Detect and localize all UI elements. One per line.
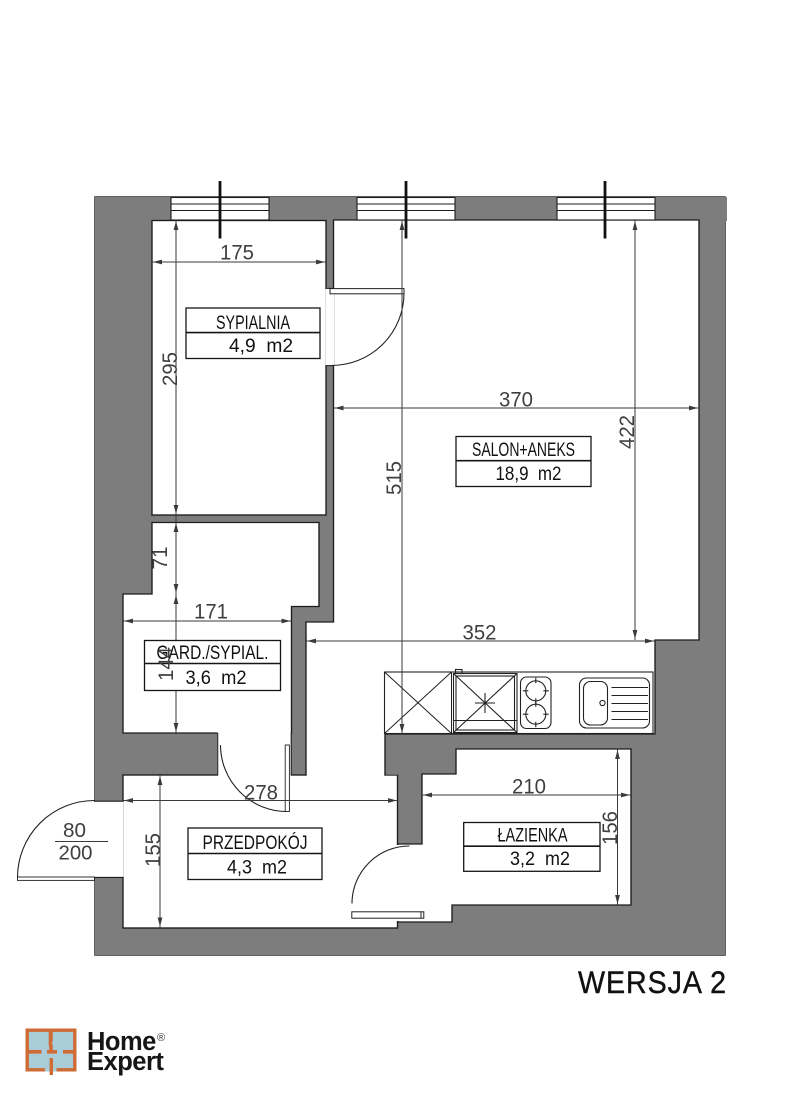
svg-text:155: 155 xyxy=(142,833,165,867)
svg-text:422: 422 xyxy=(616,415,639,449)
svg-text:WERSJA 2: WERSJA 2 xyxy=(578,964,727,1000)
svg-text:370: 370 xyxy=(499,389,533,412)
svg-text:PRZEDPOKÓJ: PRZEDPOKÓJ xyxy=(203,832,308,854)
svg-text:ŁAZIENKA: ŁAZIENKA xyxy=(498,826,568,847)
svg-text:515: 515 xyxy=(383,461,406,495)
svg-text:4,3 m2: 4,3 m2 xyxy=(227,857,287,879)
svg-text:295: 295 xyxy=(159,352,182,386)
svg-text:Expert: Expert xyxy=(87,1048,164,1076)
svg-text:SALON+ANEKS: SALON+ANEKS xyxy=(472,440,575,461)
svg-text:210: 210 xyxy=(512,776,546,799)
svg-text:SYPIALNIA: SYPIALNIA xyxy=(216,313,290,334)
svg-text:71: 71 xyxy=(149,547,172,570)
svg-text:3,2 m2: 3,2 m2 xyxy=(510,848,570,870)
svg-text:®: ® xyxy=(157,1032,165,1044)
svg-text:175: 175 xyxy=(220,242,254,265)
svg-text:171: 171 xyxy=(194,601,228,624)
svg-text:4,9 m2: 4,9 m2 xyxy=(229,335,293,357)
svg-text:156: 156 xyxy=(599,811,622,845)
svg-text:200: 200 xyxy=(59,843,93,865)
svg-text:18,9 m2: 18,9 m2 xyxy=(496,463,562,485)
svg-text:3,6 m2: 3,6 m2 xyxy=(186,667,247,689)
svg-text:352: 352 xyxy=(463,622,497,645)
svg-text:80: 80 xyxy=(63,820,86,842)
svg-text:278: 278 xyxy=(244,782,278,805)
svg-text:144: 144 xyxy=(155,647,178,681)
